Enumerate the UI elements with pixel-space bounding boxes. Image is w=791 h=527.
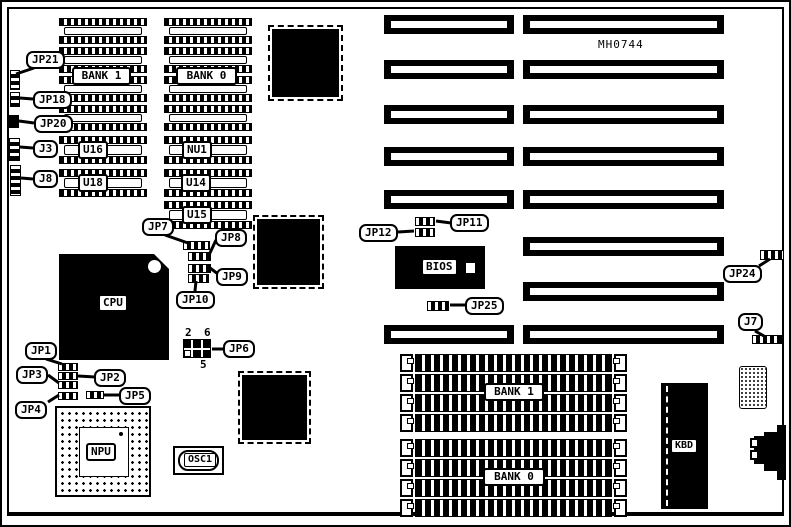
jumper-jp11-pins — [415, 217, 435, 226]
jumper-jp7-pins — [183, 241, 210, 250]
callout-jp7: JP7 — [142, 218, 174, 236]
callout-j8: J8 — [33, 170, 58, 188]
dip-socket-row — [59, 18, 147, 44]
qfp-chip — [257, 219, 320, 285]
callout-jp24: JP24 — [723, 265, 762, 283]
kbd-dashed-edge — [666, 386, 668, 506]
isa-slot-segment — [523, 147, 724, 166]
jumper-jp20-pins — [9, 115, 19, 128]
din-pin — [750, 450, 759, 460]
jp6-pin2-label: 2 — [185, 326, 192, 339]
isa-slot-segment — [384, 325, 514, 344]
jumper-jp2-pins — [58, 372, 78, 380]
jumper-j3-pins — [9, 138, 20, 161]
bios-label: BIOS — [421, 258, 458, 276]
din-pin — [750, 438, 759, 448]
jumper-jp24-pins — [760, 250, 784, 260]
callout-jp25: JP25 — [465, 297, 504, 315]
callout-jp9: JP9 — [216, 268, 248, 286]
simm-socket — [400, 499, 627, 517]
chip-u15-label: U15 — [182, 206, 212, 224]
simm-bank0-label: BANK 0 — [483, 468, 545, 486]
jp6-pin6-label: 6 — [204, 326, 211, 339]
callout-jp8: JP8 — [215, 229, 247, 247]
cpu-label: CPU — [98, 294, 128, 312]
isa-slot-segment — [523, 237, 724, 256]
callout-jp1: JP1 — [25, 342, 57, 360]
qfp-chip — [242, 375, 307, 440]
isa-slot-segment — [523, 325, 724, 344]
jumper-jp4-pins — [58, 392, 78, 400]
callout-jp18: JP18 — [33, 91, 72, 109]
pin1-dot — [148, 260, 161, 273]
crystal-component — [739, 366, 767, 409]
isa-slot-segment — [384, 60, 514, 79]
callout-jp4: JP4 — [15, 401, 47, 419]
isa-slot-segment — [523, 60, 724, 79]
bios-notch — [466, 263, 475, 273]
simm-bank1-label: BANK 1 — [484, 383, 544, 401]
jumper-jp6-pins — [183, 339, 211, 358]
isa-slot-segment — [523, 282, 724, 301]
chip-u14-label: U14 — [181, 174, 211, 192]
dip-socket-row — [164, 105, 252, 131]
pin1-dot — [119, 432, 123, 436]
isa-slot-segment — [523, 105, 724, 124]
keyboard-din-connector — [777, 470, 786, 480]
qfp-chip — [272, 29, 339, 97]
jumper-jp25-pins — [427, 301, 449, 311]
chip-u18-label: U18 — [78, 174, 108, 192]
isa-slot-segment — [384, 15, 514, 34]
callout-jp6: JP6 — [223, 340, 255, 358]
jumper-jp12-pins — [415, 228, 435, 237]
chip-nu1-label: NU1 — [182, 141, 212, 159]
jumper-jp1-pins — [58, 363, 78, 371]
jumper-jp10-pins — [188, 274, 209, 283]
callout-jp21: JP21 — [26, 51, 65, 69]
isa-slot-segment — [384, 190, 514, 209]
callout-jp3: JP3 — [16, 366, 48, 384]
jumper-jp3-pins — [58, 381, 78, 389]
kbd-label: KBD — [671, 439, 697, 453]
dip-bank0-label: BANK 0 — [176, 67, 237, 85]
jumper-jp9-pins — [188, 264, 211, 273]
keyboard-din-connector — [764, 432, 786, 471]
callout-jp10: JP10 — [176, 291, 215, 309]
jumper-jp21-pins — [10, 70, 20, 90]
jumper-j7-pins — [752, 335, 782, 344]
callout-j7: J7 — [738, 313, 763, 331]
osc1-label: OSC1 — [184, 453, 216, 467]
callout-jp20: JP20 — [34, 115, 73, 133]
jumper-jp8-pins — [188, 252, 211, 261]
dip-bank1-label: BANK 1 — [72, 67, 131, 85]
npu-label: NPU — [86, 443, 116, 461]
simm-socket — [400, 439, 627, 457]
jumper-jp5-pins — [86, 391, 104, 399]
callout-jp12: JP12 — [359, 224, 398, 242]
jumper-jp18-pins — [10, 92, 20, 107]
isa-slot-segment — [384, 105, 514, 124]
chip-u16-label: U16 — [78, 141, 108, 159]
isa-slot-segment — [523, 190, 724, 209]
callout-jp5: JP5 — [119, 387, 151, 405]
jp6-pin5-label: 5 — [200, 358, 207, 371]
jumper-j8-pins — [10, 165, 21, 196]
isa-slot-segment — [523, 15, 724, 34]
board-part-number: MH0744 — [598, 38, 644, 51]
isa-slot-segment — [384, 147, 514, 166]
simm-socket — [400, 414, 627, 432]
callout-jp2: JP2 — [94, 369, 126, 387]
motherboard-diagram: MH0744 BANK 1 BANK 0 U16 U18 NU1 U14 U15… — [0, 0, 791, 527]
callout-jp11: JP11 — [450, 214, 489, 232]
callout-j3: J3 — [33, 140, 58, 158]
dip-socket-row — [164, 18, 252, 44]
simm-socket — [400, 354, 627, 372]
